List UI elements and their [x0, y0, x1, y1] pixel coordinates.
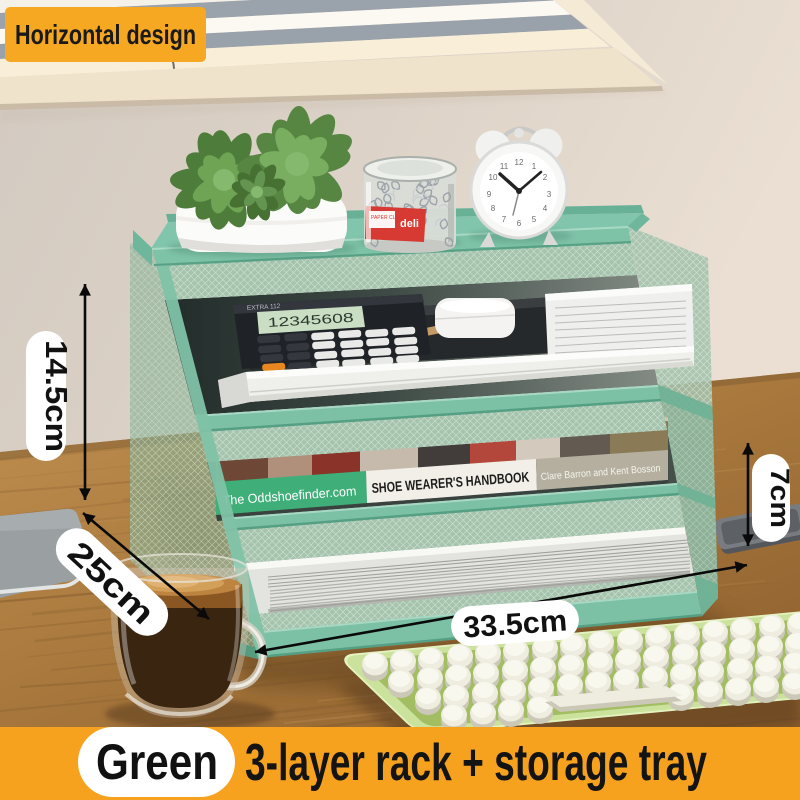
svg-text:11: 11 — [500, 162, 509, 171]
svg-text:2: 2 — [543, 173, 548, 182]
svg-text:8: 8 — [491, 204, 496, 213]
svg-text:9: 9 — [487, 190, 492, 199]
svg-text:7cm: 7cm — [765, 468, 795, 528]
svg-text:5: 5 — [532, 215, 537, 224]
svg-text:7: 7 — [502, 215, 507, 224]
svg-text:Horizontal design: Horizontal design — [15, 19, 196, 50]
svg-text:12: 12 — [515, 158, 524, 167]
svg-text:3-layer rack + storage tray: 3-layer rack + storage tray — [245, 734, 707, 792]
svg-text:3: 3 — [547, 190, 552, 199]
svg-text:Green: Green — [96, 734, 218, 790]
svg-text:1: 1 — [532, 162, 537, 171]
svg-text:14.5cm: 14.5cm — [39, 340, 74, 452]
svg-text:4: 4 — [543, 204, 548, 213]
svg-text:deli: deli — [400, 218, 419, 230]
svg-text:10: 10 — [489, 173, 498, 182]
svg-text:6: 6 — [517, 219, 522, 228]
